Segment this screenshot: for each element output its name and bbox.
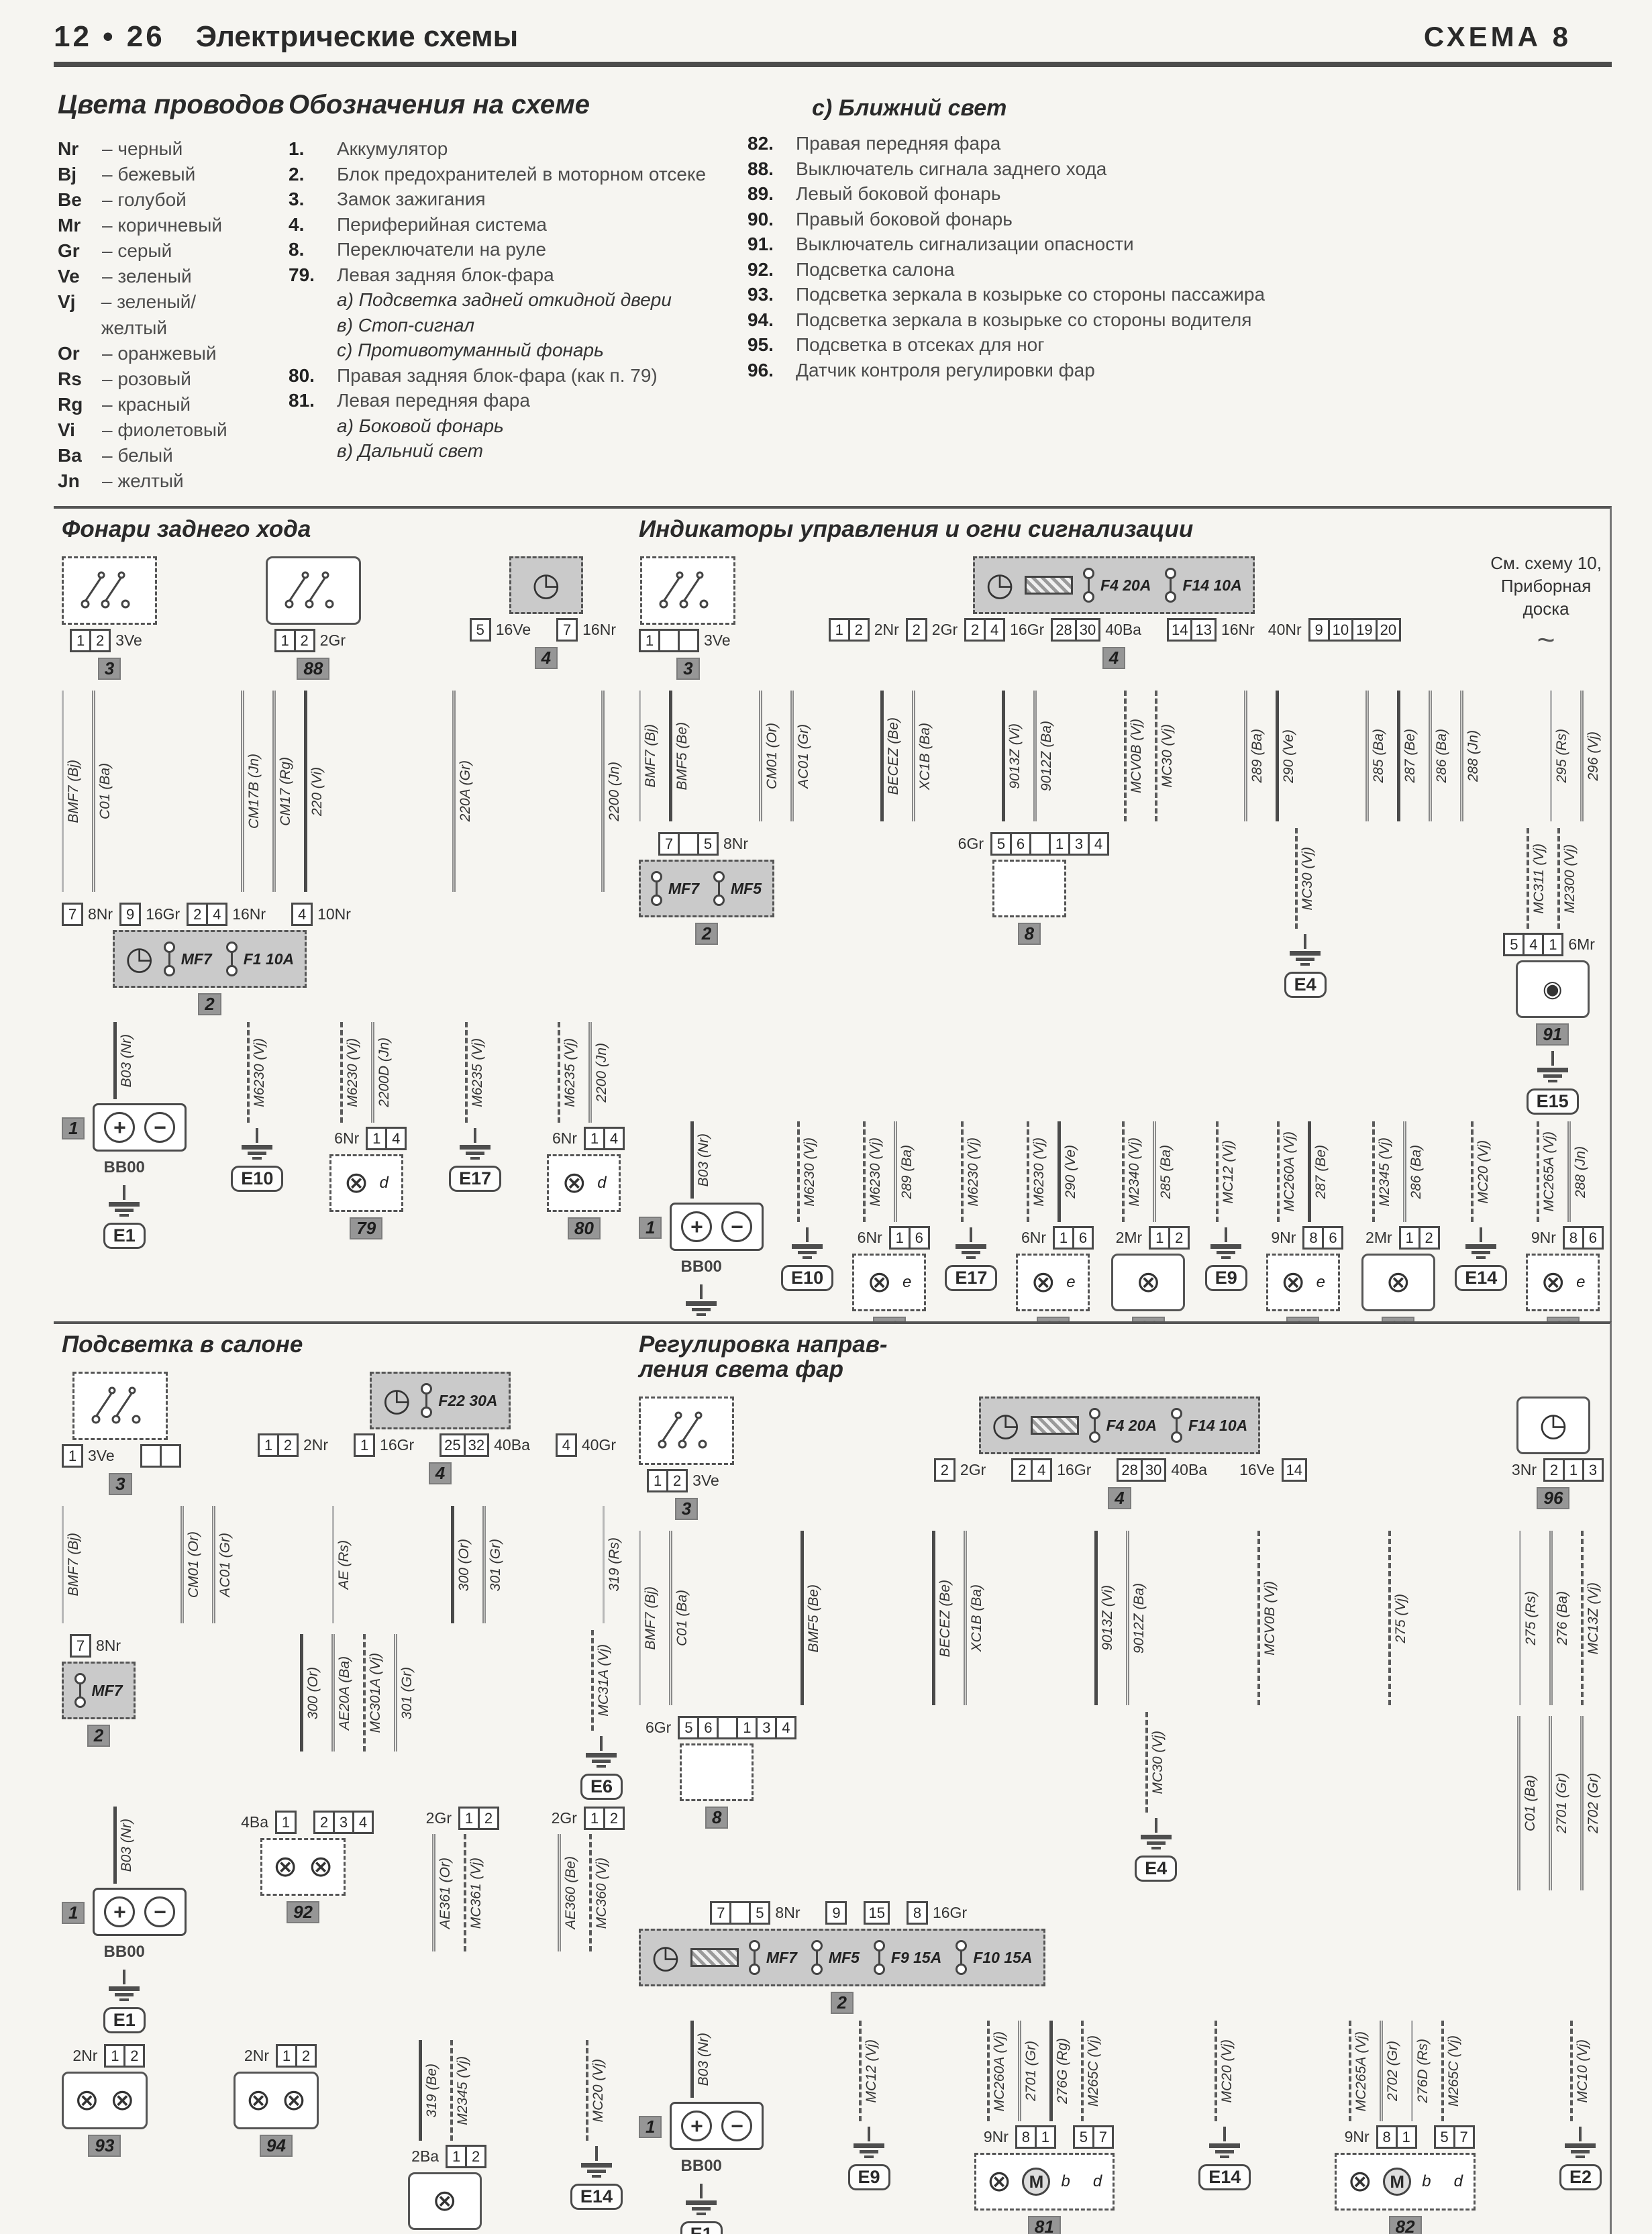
component-column: ◷ xyxy=(934,1392,1305,1509)
diagram-item: 1 xyxy=(639,552,737,680)
wire: 9012Z (Ba) xyxy=(1033,691,1055,821)
connector-pin: 19 xyxy=(1351,618,1377,642)
battery-plus-icon: + xyxy=(104,1112,135,1143)
wire: MC12 (Vj) xyxy=(859,2021,880,2121)
legend-item: 94. Подсветка зеркала в козырьке со стор… xyxy=(747,307,1612,333)
switch-icon xyxy=(85,1382,155,1430)
ground: E1 xyxy=(103,1185,146,1249)
wire-label: BB00 xyxy=(681,1258,722,1276)
fuse-label: F14 10A xyxy=(1188,1417,1247,1435)
component-column: 7 8Nr xyxy=(62,899,358,1015)
legend-item: 1. Аккумулятор xyxy=(289,136,718,162)
legend-item-number: 2. xyxy=(289,162,337,187)
diagram-item: 319 (Be) M2345 (Vj) xyxy=(405,2040,484,2234)
diagram-item: BMF7 (Bj) C01 (Ba) xyxy=(62,687,113,892)
diagram-item: BMF7 (Bj) BMF5 (Be) xyxy=(639,687,690,821)
wire-label: MC265A (Vj) xyxy=(1541,1131,1557,1211)
connector-pin: 2 xyxy=(277,1433,299,1457)
ground-icon xyxy=(1209,2141,1240,2158)
wire-color-code: Jn xyxy=(58,468,102,494)
diagram-item: 295 (Rs) 296 (Vj) xyxy=(1550,687,1602,821)
component-badge: 79 xyxy=(350,1217,382,1239)
connector-label: 8Nr xyxy=(96,1637,121,1655)
connector-pin: 20 xyxy=(1376,618,1401,642)
wire-color-code: Ba xyxy=(58,443,102,468)
component-box: ⊗ xyxy=(547,1154,621,1212)
wire-label: MC265A (Vj) xyxy=(1353,2031,1370,2111)
connector-pin: 1 xyxy=(829,618,850,642)
connector-pin: 7 xyxy=(1453,2125,1475,2149)
wire-label: 287 (Be) xyxy=(1313,1145,1329,1199)
fuse-icon xyxy=(878,1942,885,1973)
legend-item-text: Датчик контроля регулировки фар xyxy=(796,358,1095,383)
diagram-item: 2Nr 1 2 xyxy=(62,2040,148,2157)
diagram-item: M6230 (Vj) E17 xyxy=(945,1121,997,1291)
component-badge: 1 xyxy=(639,2116,662,2138)
wire-label: 300 (Or) xyxy=(305,1667,321,1719)
wire: MC10 (Vj) xyxy=(1570,2021,1591,2121)
wire-color-code: Be xyxy=(58,187,102,213)
connector-label: 2Gr xyxy=(320,631,346,650)
wire-color-name: – красный xyxy=(102,392,191,417)
connector-label: 6Nr xyxy=(552,1129,577,1148)
ground-icon xyxy=(1141,1833,1172,1849)
component-column: M2345 (Vj) 286 (Ba) xyxy=(1359,1121,1438,1321)
diagram-item: 7 5 xyxy=(639,828,774,945)
wire-color-row: Rg – красный xyxy=(58,392,259,417)
wire-colors-legend: Цвета проводов Nr – черный Bj – бежевый … xyxy=(58,90,259,494)
section-letter: e xyxy=(1066,1273,1075,1292)
wire-label: 275 (Rs) xyxy=(1523,1591,1539,1645)
legend-item: 91. Выключатель сигнализации опасности xyxy=(747,232,1612,257)
ground-label: E1 xyxy=(103,1223,146,1249)
wire-label: 9012Z (Ba) xyxy=(1039,721,1055,791)
legend-item-text: Выключатель сигнализации опасности xyxy=(796,232,1134,257)
connector-label: 40Ba xyxy=(1171,1461,1207,1479)
connector-pin: 3 xyxy=(1582,1458,1604,1482)
connector-pin: 1 xyxy=(584,1127,605,1150)
connector-pin: 6 xyxy=(1322,1226,1343,1250)
wire: 301 (Gr) xyxy=(482,1506,504,1623)
legend-item-number: 95. xyxy=(747,332,796,358)
component-box: ⊗ xyxy=(1266,1254,1340,1311)
low-beam-heading: с) Ближний свет xyxy=(812,95,1612,121)
relay-icon xyxy=(1025,576,1073,595)
connector-pin: 5 xyxy=(470,618,491,642)
wire-label: 9013Z (Vi) xyxy=(1100,1585,1116,1651)
legend-item-text: Замок зажигания xyxy=(337,187,486,212)
wire: C01 (Ba) xyxy=(669,1531,690,1705)
diagram-item: MC20 (Vj) E14 xyxy=(570,2040,623,2210)
diagram-item: 319 (Rs) xyxy=(603,1502,623,1623)
wire-bundle: MCV0B (Vj) MC30 (Vj) xyxy=(1124,687,1176,821)
wire: MC260A (Vj) xyxy=(987,2021,1008,2121)
wire: MC20 (Vj) xyxy=(586,2040,607,2141)
component-column: 7 8Nr xyxy=(62,1630,136,1747)
legend-item-text: Правый боковой фонарь xyxy=(796,207,1013,232)
legend: Цвета проводов Nr – черный Bj – бежевый … xyxy=(58,90,1612,494)
motor-icon: M xyxy=(1022,2168,1050,2196)
battery: + − xyxy=(93,1103,187,1152)
wire: AC01 (Gr) xyxy=(212,1506,234,1623)
ground-column: MC12 (Vj) E9 xyxy=(848,2021,890,2190)
connector-pin: 5 xyxy=(1434,2125,1455,2149)
diagram-item: M6230 (Vj) 290 (Ve) xyxy=(1015,1121,1092,1321)
fuse-icon xyxy=(718,873,725,904)
legend-item-number: 3. xyxy=(289,187,337,212)
fuse: F22 30A xyxy=(421,1385,497,1416)
ground: E2 xyxy=(1559,2127,1602,2190)
diagram-item: 2Gr 1 2 xyxy=(419,1807,497,1951)
connector-pin: 1 xyxy=(458,1807,480,1830)
component-box xyxy=(640,556,735,625)
lamp-icon: ⊗ xyxy=(74,2086,99,2115)
wire-bundle: 275 (Rs) 276 (Ba) MC13Z (Vj) xyxy=(1519,1527,1602,1705)
wire: 285 (Ba) xyxy=(1365,691,1387,821)
component-box: MF7 xyxy=(62,1662,136,1719)
component-box: ⊗ xyxy=(408,2172,482,2230)
fuse-icon xyxy=(1088,570,1094,601)
timer-icon: ◷ xyxy=(992,1409,1020,1441)
legend-item: 2. Блок предохранителей в моторном отсек… xyxy=(289,162,718,187)
connector-label: 16Nr xyxy=(1221,621,1255,639)
diagram-item: M6230 (Vj) E10 xyxy=(781,1121,833,1291)
wire: M6230 (Vj) xyxy=(247,1022,268,1123)
diagram-item: См. схему 10,Приборнаядоска ~ xyxy=(1490,552,1602,652)
diagram-item: M6230 (Vj) 289 (Ba) xyxy=(851,1121,928,1321)
wire-label: 286 (Ba) xyxy=(1434,729,1450,783)
connector-pin: 1 xyxy=(70,629,91,652)
ground-icon xyxy=(854,2141,884,2158)
wire: 290 (Ve) xyxy=(1276,691,1297,821)
component-badge: 93 xyxy=(88,2135,121,2157)
wire: BMF7 (Bj) xyxy=(62,1506,82,1623)
diagram-row: 1 2 xyxy=(639,1392,1602,1520)
component-box: ⊗ xyxy=(852,1254,926,1311)
diagram-item: MC20 (Vj) E14 xyxy=(1198,2021,1251,2190)
legend-item-number: 91. xyxy=(747,232,796,257)
wire-color-name: – черный xyxy=(102,136,183,162)
connector-pin: 1 xyxy=(354,1433,375,1457)
wire-label: MC20 (Vj) xyxy=(590,2059,607,2123)
ground: E15 xyxy=(1527,1051,1579,1115)
wire-label: 9013Z (Vi) xyxy=(1007,723,1023,789)
ground-label: E10 xyxy=(781,1265,833,1291)
component-badge: 89 xyxy=(1132,1317,1165,1321)
wire-label: 300 (Or) xyxy=(456,1539,472,1591)
battery-minus-icon: − xyxy=(721,2111,752,2141)
connector-label: 6Mr xyxy=(1568,935,1595,954)
connector-pin: 5 xyxy=(990,832,1012,856)
diagram-item: 289 (Ba) 290 (Ve) xyxy=(1244,687,1297,821)
wire-label: M2345 (Vj) xyxy=(1377,1137,1393,1207)
wire: 301 (Gr) xyxy=(394,1634,415,1751)
wire: MC30 (Vj) xyxy=(1155,691,1176,821)
wire: 275 (Vj) xyxy=(1388,1531,1409,1705)
wire-bundle: CM17B (Jn) CM17 (Rg) 220 (Vi) xyxy=(241,687,325,892)
connector-pin xyxy=(160,1444,181,1468)
fuse-label: F4 20A xyxy=(1100,576,1151,595)
squiggle-icon: ~ xyxy=(1537,627,1555,652)
fuse-icon xyxy=(168,944,175,974)
ground-column: MC30 (Vj) E4 xyxy=(1135,1712,1177,1882)
component-box: ⊗ M bd xyxy=(1335,2153,1476,2211)
connector-label: 16Gr xyxy=(933,1904,967,1922)
fuse: F10 15A xyxy=(956,1942,1032,1973)
wire-label: 301 (Gr) xyxy=(399,1667,415,1719)
connector-pin: 1 xyxy=(62,1444,83,1468)
connector-label: 8Nr xyxy=(775,1904,800,1922)
component-badge: 2 xyxy=(695,923,718,945)
wire-label: 276 (Ba) xyxy=(1555,1591,1571,1645)
connector-pin: 5 xyxy=(697,832,719,856)
wire-label: 9012Z (Ba) xyxy=(1131,1583,1147,1654)
wire-bundle: BECEZ (Be) XC1B (Ba) xyxy=(880,687,933,821)
wire-label: 2200D (Jn) xyxy=(376,1037,393,1107)
ground: E10 xyxy=(231,1128,283,1192)
wire: M2345 (Vj) xyxy=(1372,1121,1393,1222)
ground-icon xyxy=(586,1751,617,1768)
wire: AE20A (Ba) xyxy=(331,1634,353,1751)
wire-bundle: 2Gr 1 2 xyxy=(419,1807,497,1951)
connector-pin: 30 xyxy=(1141,1458,1166,1482)
ground: E4 xyxy=(1135,1818,1177,1882)
diagram-row: 7 5 xyxy=(639,828,1602,1115)
component-column: 6Gr 5 6 xyxy=(639,1712,794,1829)
wire-color-row: Rs – розовый xyxy=(58,366,259,392)
diagram-item: MC31A (Vj) E6 xyxy=(580,1630,623,1800)
connector-label: 3Ve xyxy=(704,631,731,650)
connector-label: 6Nr xyxy=(1021,1229,1046,1247)
lamp-icon: ⊗ xyxy=(1281,1268,1306,1297)
ground: E14 xyxy=(1198,2127,1251,2190)
legend-item: 93. Подсветка зеркала в козырьке со стор… xyxy=(747,282,1612,307)
diagram-panel: Индикаторы управления и огни сигнализаци… xyxy=(631,506,1612,1321)
wire: 276D (Rs) xyxy=(1411,2021,1431,2121)
wire: MCV0B (Vj) xyxy=(1257,1531,1278,1705)
wire-label: M265C (Vj) xyxy=(1446,2035,1462,2106)
diagram-item: 1 3Ve xyxy=(62,1368,179,1495)
page-number: 12 • 26 xyxy=(54,20,165,54)
wire: BECEZ (Be) xyxy=(932,1531,953,1705)
legend-subitem: а) Боковой фонарь xyxy=(337,413,718,439)
wire-label: AC01 (Gr) xyxy=(796,724,812,789)
panel-title: Регулировка направ-ления света фар xyxy=(639,1332,1602,1382)
battery-plus-icon: + xyxy=(104,1896,135,1927)
wire: M6230 (Vj) xyxy=(1027,1121,1047,1222)
switch-icon xyxy=(74,566,144,615)
wire-color-name: – серый xyxy=(102,238,172,264)
wire-bundle: 300 (Or) 301 (Gr) xyxy=(451,1502,504,1623)
component-column: MC260A (Vj) 287 (Be) xyxy=(1264,1121,1341,1321)
diagram-item: ◷ xyxy=(1505,1392,1602,1509)
wire: MC20 (Vj) xyxy=(1471,1121,1492,1222)
legend-item-text: Левая задняя блок-фара xyxy=(337,262,554,288)
wire-color-row: Vj – зеленый/желтый xyxy=(58,289,259,340)
legend-item: 88. Выключатель сигнала заднего хода xyxy=(747,156,1612,182)
wire: AE360 (Be) xyxy=(558,1834,579,1951)
connector-label: 16Nr xyxy=(582,621,616,639)
component-box: ◉ xyxy=(1516,960,1590,1018)
diagram-item: 1 2 xyxy=(639,1392,734,1520)
diagram-item: ◷ xyxy=(934,1392,1305,1509)
fuse: MF7 xyxy=(750,1942,797,1973)
wire-color-code: Vi xyxy=(58,417,102,443)
wire-color-code: Vj xyxy=(58,289,101,340)
wire-label: M2300 (Vj) xyxy=(1562,844,1578,913)
lamp-icon: ⊗ xyxy=(432,2186,457,2216)
wire-label: 220A (Gr) xyxy=(458,760,474,821)
component-box: ⊗ M bd xyxy=(974,2153,1115,2211)
connector-pin: 30 xyxy=(1075,618,1100,642)
diagram-item: 9013Z (Vi) 9012Z (Ba) xyxy=(1094,1527,1147,1705)
timer-icon: ◷ xyxy=(532,569,560,601)
connector-pin: 2 xyxy=(187,903,208,926)
ground-icon xyxy=(1537,1066,1568,1082)
wire: 319 (Be) xyxy=(419,2040,440,2141)
wire: 9013Z (Vi) xyxy=(1002,691,1023,821)
diagram-item: BMF7 (Bj) C01 (Ba) xyxy=(639,1527,690,1705)
legend-item-text: Правая задняя блок-фара (как п. 79) xyxy=(337,363,658,389)
wire: MC260A (Vj) xyxy=(1277,1121,1298,1222)
wire-label: XC1B (Ba) xyxy=(917,723,933,790)
connector-pin: 28 xyxy=(1051,618,1076,642)
wire: 290 (Ve) xyxy=(1057,1121,1079,1222)
wire: MC265A (Vj) xyxy=(1349,2021,1370,2121)
connector-pin: 6 xyxy=(909,1226,930,1250)
wire-color-code: Bj xyxy=(58,162,102,187)
connector-pin: 5 xyxy=(1503,933,1525,956)
wire-label: 290 (Ve) xyxy=(1063,1145,1079,1199)
connector-pin: 2 xyxy=(1011,1458,1033,1482)
component-column: 4Ba 1 xyxy=(234,1807,372,1923)
legend-subitem: а) Подсветка задней откидной двери xyxy=(337,287,718,313)
connector-pin: 1 xyxy=(1542,933,1563,956)
connector-pin: 1 xyxy=(275,1811,297,1834)
legend-item-number: 88. xyxy=(747,156,796,182)
ground-label: E1 xyxy=(680,2221,723,2234)
connector-pin: 9 xyxy=(119,903,141,926)
diagram-item: C01 (Ba) 2701 (Gr) 2702 (Gr) xyxy=(1517,1712,1602,1890)
wire-bundle: 275 (Vj) xyxy=(1388,1527,1409,1705)
ground: E17 xyxy=(945,1227,997,1291)
legend-item-text: Подсветка зеркала в козырьке со стороны … xyxy=(796,282,1265,307)
fuse-icon xyxy=(231,944,238,974)
connector-label: 2Nr xyxy=(874,621,899,639)
component-box xyxy=(72,1372,168,1440)
wire-label: MC361 (Vj) xyxy=(468,1858,484,1929)
connector-pin: 2 xyxy=(1543,1458,1565,1482)
wire-bundle: MCV0B (Vj) xyxy=(1257,1527,1278,1705)
fuse-icon xyxy=(79,1675,86,1706)
lamp-icon: ⊗ xyxy=(110,2086,135,2115)
diagram-item: MCV0B (Vj) MC30 (Vj) xyxy=(1124,687,1176,821)
component-badge: 82 xyxy=(1389,2216,1422,2234)
page-header: 12 • 26 Электрические схемы СХЕМА 8 xyxy=(54,20,1612,54)
wire-label: MC20 (Vj) xyxy=(1219,2039,1235,2103)
battery-plus-icon: + xyxy=(681,1211,712,1242)
component-box: ⊗ ⊗ xyxy=(260,1838,346,1896)
connector-pin: 4 xyxy=(556,1433,577,1457)
fuse: MF5 xyxy=(812,1942,860,1973)
fuse-icon xyxy=(816,1942,823,1973)
wire-color-name: – желтый xyxy=(102,468,184,494)
wire-label: MC12 (Vj) xyxy=(864,2039,880,2103)
component-box xyxy=(639,1397,734,1465)
diagram-row: 1 2 xyxy=(62,552,623,680)
relay-icon xyxy=(1031,1416,1079,1435)
diagram-item: BMF7 (Bj) xyxy=(62,1502,82,1623)
legend-item-text: Левая передняя фара xyxy=(337,388,530,413)
diagram-item: M6235 (Vj) E17 xyxy=(449,1022,501,1192)
wire-label: BMF7 (Bj) xyxy=(643,724,659,788)
legend-item-number: 8. xyxy=(289,237,337,262)
diagram-item: 2Gr 1 2 xyxy=(545,1807,623,1951)
connector-label: 16Gr xyxy=(146,905,180,923)
wire-color-row: Mr – коричневый xyxy=(58,213,259,238)
wire: M6230 (Vj) xyxy=(863,1121,884,1222)
diagram-panel: Регулировка направ-ления света фар xyxy=(631,1321,1612,2234)
component-column: MC260A (Vj) 2701 (Gr) 276G (Rg) M265C (V… xyxy=(974,2021,1115,2234)
connector-pin: 4 xyxy=(206,903,227,926)
legend-item: 89. Левый боковой фонарь xyxy=(747,181,1612,207)
component-badge: 81 xyxy=(1286,1317,1319,1321)
legend-item-text: Подсветка зеркала в козырьке со стороны … xyxy=(796,307,1251,333)
connector-label: 2Mr xyxy=(1116,1229,1143,1247)
wire: MC31A (Vj) xyxy=(591,1630,612,1731)
ground: E9 xyxy=(1205,1227,1247,1291)
ground: E1 xyxy=(680,1284,723,1321)
diagram-item: MC30 (Vj) E4 xyxy=(1284,828,1327,998)
component-box: ◷ xyxy=(113,930,307,988)
connector-pin: 8 xyxy=(907,1901,928,1925)
legend-item-number: 1. xyxy=(289,136,337,162)
diagram-item: CM01 (Or) AC01 (Gr) xyxy=(759,687,812,821)
wire-label: 288 (Jn) xyxy=(1465,730,1482,782)
ground: E17 xyxy=(449,1128,501,1192)
wire: 9013Z (Vi) xyxy=(1094,1531,1116,1705)
diagram-item: 275 (Vj) xyxy=(1388,1527,1409,1705)
diagram-item: 6Gr 5 6 xyxy=(639,1712,794,1829)
component-column: 2Nr 1 2 xyxy=(234,2040,319,2157)
wire-label: BB00 xyxy=(681,2157,722,2176)
diagram-row: BMF7 (Bj) xyxy=(62,1502,623,1623)
ground-column: M6230 (Vj) E17 xyxy=(945,1121,997,1291)
battery: + − xyxy=(670,2102,764,2150)
wire: 296 (Vj) xyxy=(1580,691,1602,821)
diagram-item: B03 (Nr) 1 + − BB00 xyxy=(62,1807,187,2033)
connector-label: 40Ba xyxy=(1105,621,1141,639)
connector-pin: 2 xyxy=(295,2044,317,2068)
wire-color-row: Ve – зеленый xyxy=(58,264,259,289)
wire-label: 220 (Vi) xyxy=(309,767,325,816)
wire-label: BMF7 (Bj) xyxy=(66,1533,82,1596)
connector-pin xyxy=(678,629,699,652)
diagram-item: M6230 (Vj) E10 xyxy=(231,1022,283,1192)
wire: 2701 (Gr) xyxy=(1018,2021,1039,2121)
wire-color-row: Vi – фиолетовый xyxy=(58,417,259,443)
component-box: ⊗ ⊗ xyxy=(234,2072,319,2129)
wire-label: AE20A (Ba) xyxy=(337,1656,353,1730)
diagram-row: 2Nr 1 2 xyxy=(62,2040,623,2234)
wire-bundle: 289 (Ba) 290 (Ve) xyxy=(1244,687,1297,821)
fuse-label: MF5 xyxy=(829,1949,860,1967)
component-badge: 1 xyxy=(639,1217,662,1239)
connector-pin: 4 xyxy=(352,1811,374,1834)
ground-column: MC12 (Vj) E9 xyxy=(1205,1121,1247,1291)
wire-label: MC12 (Vj) xyxy=(1221,1140,1237,1204)
wire-label: M6230 (Vj) xyxy=(868,1137,884,1207)
